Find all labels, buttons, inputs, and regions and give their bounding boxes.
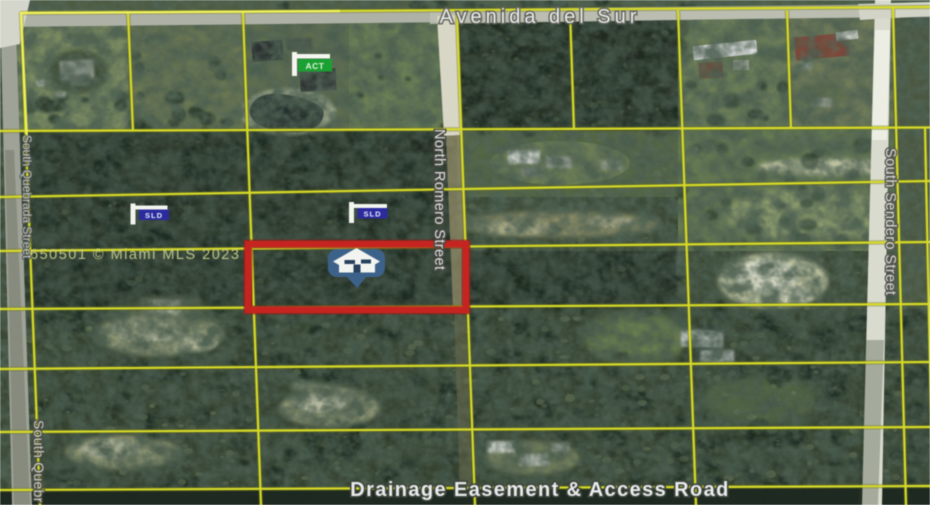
svg-text:SLD: SLD (364, 210, 382, 219)
svg-text:South Quebr: South Quebr (31, 420, 47, 503)
svg-text:650501 © Miami MLS 2023: 650501 © Miami MLS 2023 (30, 247, 240, 263)
svg-text:North Romero Street: North Romero Street (431, 129, 447, 270)
svg-text:Drainage Easement & Access Roa: Drainage Easement & Access Road (350, 479, 729, 501)
svg-text:South Sendero Street: South Sendero Street (882, 148, 898, 295)
svg-text:ACT: ACT (306, 61, 325, 71)
svg-text:SLD: SLD (145, 211, 163, 220)
svg-text:South Quebrada Street: South Quebrada Street (20, 135, 34, 259)
svg-text:Avenida del Sur: Avenida del Sur (440, 6, 641, 28)
